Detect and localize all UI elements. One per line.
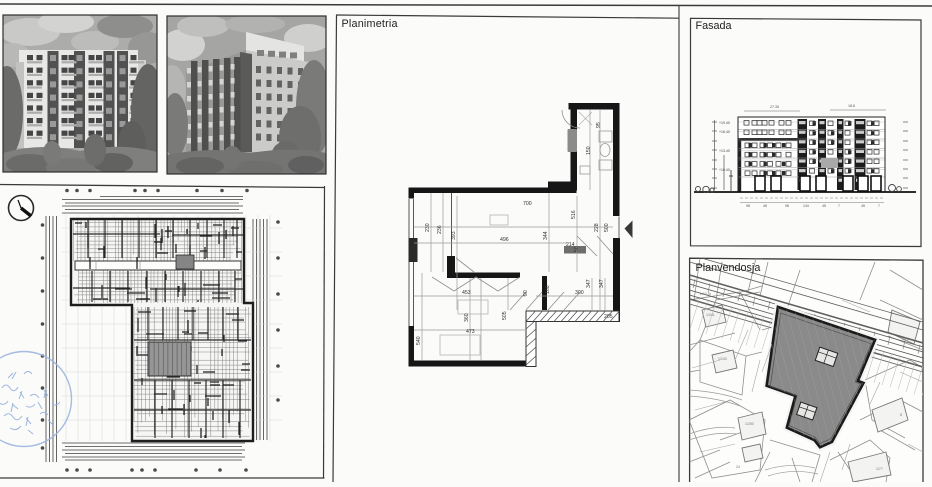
svg-text:45: 45 <box>861 204 865 208</box>
svg-text:24: 24 <box>736 465 740 469</box>
svg-text:50: 50 <box>574 246 580 252</box>
svg-text:7: 7 <box>838 204 840 208</box>
svg-text:344: 344 <box>543 231 549 240</box>
svg-text:27.35: 27.35 <box>770 105 779 109</box>
svg-text:540: 540 <box>416 336 422 345</box>
svg-text:500: 500 <box>604 223 610 232</box>
svg-text:134: 134 <box>803 204 809 208</box>
svg-text:228: 228 <box>594 223 600 232</box>
svg-text:700: 700 <box>523 201 532 207</box>
svg-text:+13.40: +13.40 <box>719 149 730 153</box>
svg-text:1/243: 1/243 <box>718 357 727 361</box>
svg-text:236: 236 <box>437 225 443 234</box>
svg-text:Fasada: Fasada <box>696 20 732 32</box>
svg-text:90: 90 <box>523 290 529 296</box>
svg-text:453: 453 <box>462 290 471 296</box>
svg-text:300: 300 <box>575 290 584 296</box>
svg-text:Planvendosja: Planvendosja <box>696 262 761 274</box>
svg-text:347: 347 <box>586 279 592 288</box>
svg-text:7: 7 <box>878 204 880 208</box>
svg-text:1/250: 1/250 <box>745 422 754 426</box>
svg-text:1/241: 1/241 <box>706 313 715 317</box>
svg-text:+16.40: +16.40 <box>719 130 730 134</box>
svg-text:516: 516 <box>571 210 577 219</box>
svg-text:+10.40: +10.40 <box>719 168 730 172</box>
svg-text:95: 95 <box>596 122 602 128</box>
svg-text:150: 150 <box>586 146 592 155</box>
svg-text:1/77: 1/77 <box>876 467 883 471</box>
svg-text:360: 360 <box>464 313 470 322</box>
svg-text:496: 496 <box>500 237 509 243</box>
svg-text:1/75: 1/75 <box>902 337 909 341</box>
svg-text:8: 8 <box>900 413 902 417</box>
svg-text:347: 347 <box>599 279 605 288</box>
svg-text:98: 98 <box>785 204 789 208</box>
svg-text:45: 45 <box>763 204 767 208</box>
svg-text:205: 205 <box>604 314 613 320</box>
svg-text:45: 45 <box>822 204 826 208</box>
svg-text:Planimetria: Planimetria <box>342 18 398 30</box>
svg-text:473: 473 <box>466 329 475 335</box>
svg-text:98: 98 <box>746 204 750 208</box>
svg-text:18.6: 18.6 <box>848 104 855 108</box>
svg-text:230: 230 <box>425 223 431 232</box>
svg-text:LAGJA: LAGJA <box>700 292 712 296</box>
svg-text:160: 160 <box>545 285 551 294</box>
svg-text:393: 393 <box>451 231 457 240</box>
svg-text:505: 505 <box>502 311 508 320</box>
svg-text:+19.40: +19.40 <box>719 121 730 125</box>
